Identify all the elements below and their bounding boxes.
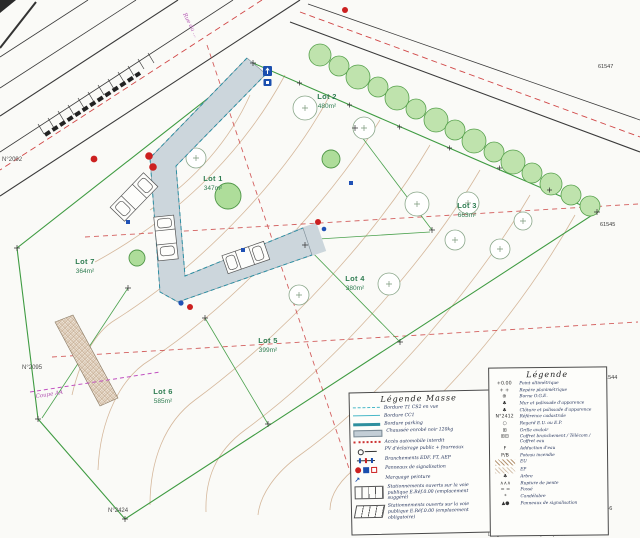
street-light-icon — [354, 448, 381, 455]
legend-item: Panneaux de signalisation — [521, 500, 578, 506]
elevation-point-symbol: +0.00 — [492, 381, 516, 387]
entrance-signs — [263, 66, 272, 86]
lot-5-area: 399m² — [259, 347, 278, 354]
legend-box: Légende +0.00Point altimétrique + +Repèr… — [488, 366, 609, 536]
legend-item: EP — [520, 467, 526, 472]
blue-marker — [322, 227, 327, 232]
manhole-symbol: ○ — [493, 421, 517, 427]
paint-arrow-icon: ↗ — [354, 477, 381, 484]
legend-item: Référence cadastrale — [520, 414, 566, 420]
wall-fence-symbol: ♣ — [492, 401, 516, 407]
legend-masse-item: PV d'éclairage public + fourreaux — [385, 445, 464, 452]
lot-6-name: Lot 6 — [153, 387, 172, 396]
sewer-hatch-symbol — [493, 460, 517, 466]
lot-7-area: 364m² — [76, 268, 95, 275]
swatch-no-access — [354, 440, 381, 443]
utility-cabinets-symbol: ⊞⊟ — [493, 435, 517, 441]
street-name-label: Rue du ... — [181, 11, 199, 39]
tree-symbol: ♣ — [493, 474, 517, 480]
legend-masse-item: Marquage peinture — [385, 474, 430, 481]
lot-1-name: Lot 1 — [203, 174, 222, 183]
parcel-2424: N°2424 — [108, 508, 129, 514]
stormwater-hatch-symbol — [493, 467, 517, 473]
planimetric-mark-symbol: + + — [492, 388, 516, 394]
legend-item: Adduction d'eau — [520, 446, 555, 452]
legend-masse-title: Légende Masse — [353, 393, 485, 405]
lot-6-area: 585m² — [154, 398, 173, 405]
legend-item: Mur et palissade d'apparence — [519, 401, 584, 407]
legend-item: Coffret branchement / Télécom / Coffret … — [520, 434, 603, 445]
lot-1-area: 347m² — [204, 185, 223, 192]
lot-7-name: Lot 7 — [75, 257, 94, 266]
legend-item: Regard E.U. ou E.P. — [520, 421, 562, 427]
cadastral-ref-symbol: N°2412 — [493, 415, 517, 421]
parcel-2092: N°2092 — [2, 157, 23, 163]
signage-symbol: ▲● — [494, 501, 518, 507]
red-marker — [149, 163, 157, 171]
swatch-parking-curb — [353, 422, 380, 426]
lot-2-name: Lot 2 — [317, 92, 336, 101]
legend-item: Arbre — [520, 474, 533, 479]
lot-5-name: Lot 5 — [258, 336, 277, 345]
crosswalk-hatch — [38, 53, 154, 134]
ref-top-right: 61547 — [598, 64, 613, 70]
legend-item: Borne O.G.E. — [519, 394, 547, 399]
legend-masse-item: Bordure T1 CS2 en vue — [384, 405, 439, 412]
blue-utility-box — [126, 220, 130, 224]
legend-masse-item: Bordure parking — [384, 421, 423, 428]
parking-sketch-icon — [354, 486, 383, 500]
parcel-2095: N°2095 — [22, 365, 43, 371]
lot-4-area: 380m² — [346, 285, 365, 292]
legend-item: Clôture et palissade d'apparence — [520, 407, 592, 413]
legend-masse-item: Panneaux de signalisation — [385, 464, 446, 471]
section-label: Coupe AA — [35, 390, 63, 400]
red-marker — [315, 219, 321, 225]
fire-hydrant-symbol: P/B — [493, 453, 517, 459]
legend-masse-item: Bordure CC1 — [384, 413, 415, 419]
legend-masse-item: Accès automobile interdit — [385, 438, 445, 445]
lot-3-name: Lot 3 — [457, 201, 476, 210]
legend-masse-item: Branchements EDF, FT, AEP — [385, 455, 451, 462]
red-marker — [342, 7, 348, 13]
water-supply-symbol: F — [493, 446, 517, 452]
lot-4-name: Lot 4 — [345, 274, 365, 283]
legend-masse-item: Chaussée enrobé noir 120kg — [386, 428, 453, 435]
legend-item: EU — [520, 459, 527, 464]
legend-item: Candélabre — [520, 494, 545, 499]
street-hatch-band — [45, 73, 140, 135]
ref-right-upper: 61545 — [600, 222, 615, 228]
legend-masse-item: Stationnements ouverts sur la voie publi… — [387, 482, 486, 501]
legend-item: Rupture de pente — [520, 481, 558, 487]
red-marker — [91, 156, 98, 163]
swatch-roadway — [353, 430, 382, 438]
hatched-strip — [55, 315, 118, 406]
scan-artifacts — [0, 0, 36, 48]
legend-item: Repère planimétrique — [519, 387, 567, 393]
legend-title: Légende — [492, 369, 602, 379]
road-signs-icon — [354, 466, 381, 474]
red-marker — [187, 304, 193, 310]
boundary-marker-symbol: ⊕ — [492, 395, 516, 401]
parking-group-2 — [154, 215, 178, 261]
legend-item: Poteau incendie — [520, 453, 555, 459]
legend-item: Grille avaloir — [520, 428, 549, 433]
slope-break-symbol: ∧∧∧ — [493, 481, 517, 487]
parking-group-1 — [110, 173, 158, 221]
site-plan-canvas: Lot 1 347m² Lot 2 480m² Lot 3 663m² Lot … — [0, 0, 640, 538]
ditch-symbol: = = — [493, 488, 517, 494]
lamppost-symbol: * — [493, 494, 517, 500]
utility-connections-icon — [354, 457, 381, 464]
legend-masse-box: Légende Masse Bordure T1 CS2 en vue Bord… — [349, 390, 493, 536]
lot-2-area: 480m² — [318, 103, 337, 110]
swatch-dashed-curb — [353, 407, 380, 409]
blue-utility-box — [241, 248, 245, 252]
red-marker — [145, 152, 153, 160]
blue-utility-box — [349, 181, 353, 185]
hedge-fence-symbol: ♣ — [493, 408, 517, 414]
legend-masse-item: Stationnements ouverts sur la voie publi… — [388, 502, 487, 521]
legend-item: Fossé — [520, 488, 532, 493]
parking-sketch-icon — [354, 505, 385, 519]
hedge-row — [309, 44, 600, 216]
legend-item: Point altimétrique — [519, 381, 558, 387]
swatch-solid-curb — [353, 415, 380, 417]
lot-3-area: 663m² — [458, 212, 477, 219]
blue-marker — [178, 300, 183, 305]
gully-grate-symbol: ⊞ — [493, 428, 517, 434]
